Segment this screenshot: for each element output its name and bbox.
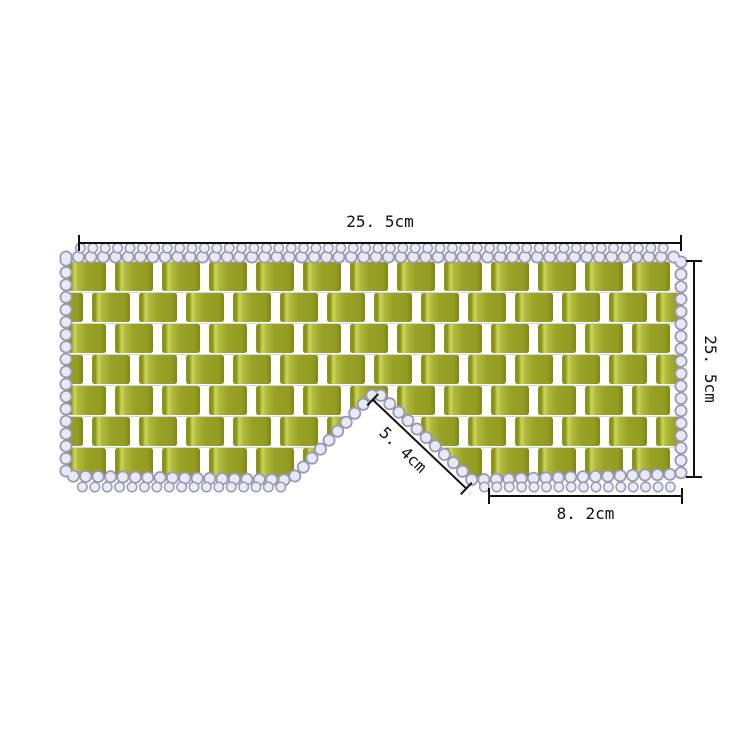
dimension-top-width: 25. 5cm bbox=[78, 214, 682, 254]
dimension-tick bbox=[681, 488, 683, 504]
dimension-label-bottom-right-width: 8. 2cm bbox=[488, 506, 683, 522]
dimension-tick bbox=[686, 260, 702, 262]
dimension-tick bbox=[488, 488, 490, 504]
jade-eye-mask-photo bbox=[0, 0, 750, 750]
dimension-label-top-width: 25. 5cm bbox=[78, 214, 682, 230]
dimension-line bbox=[488, 495, 683, 497]
dimension-tick bbox=[686, 476, 702, 478]
dimension-label-right-height: 25. 5cm bbox=[702, 335, 718, 402]
dimension-tick bbox=[680, 235, 682, 251]
dimension-right-height: 25. 5cm bbox=[686, 260, 730, 478]
dimension-tick bbox=[78, 235, 80, 251]
dimension-line bbox=[693, 260, 695, 478]
jade-tile-weave bbox=[64, 261, 683, 477]
dimension-line bbox=[78, 242, 682, 244]
dimension-bottom-right-width: 8. 2cm bbox=[488, 488, 683, 526]
product-size-image: 25. 5cm 25. 5cm 5. 4cm 8. 2cm bbox=[0, 0, 750, 750]
